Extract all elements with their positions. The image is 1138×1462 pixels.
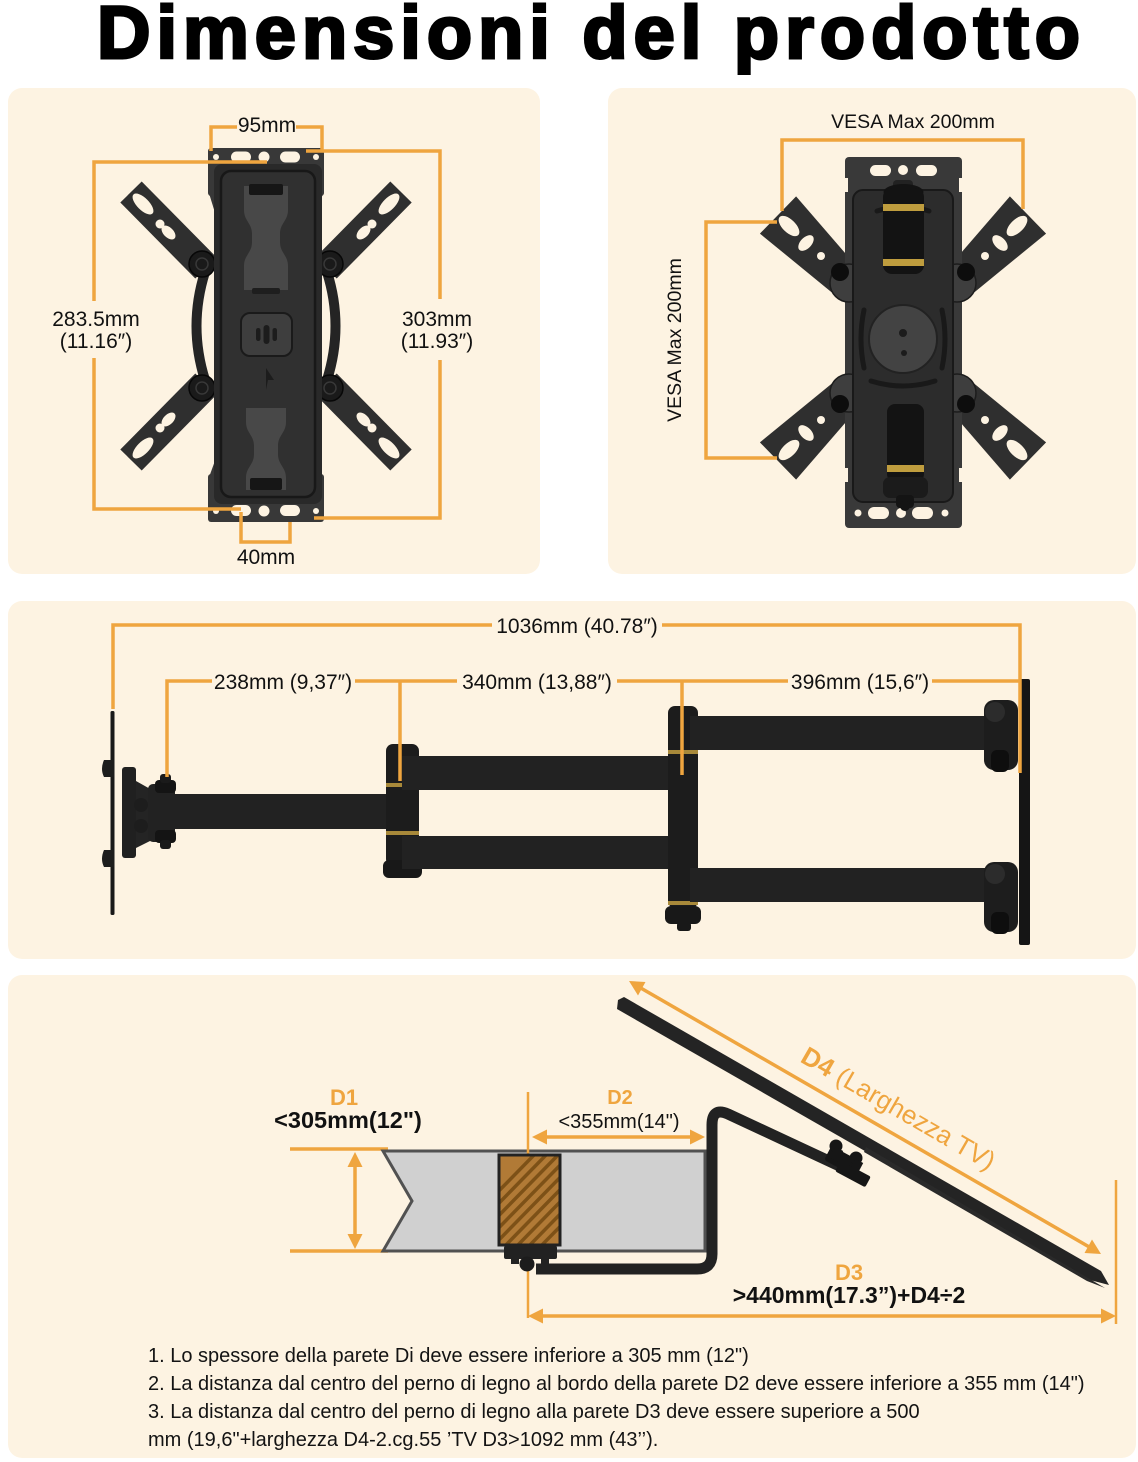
svg-text:238mm (9,37″): 238mm (9,37″) <box>214 671 352 694</box>
svg-text:340mm (13,88″): 340mm (13,88″) <box>462 671 612 694</box>
svg-text:95mm: 95mm <box>238 114 296 137</box>
svg-text:<355mm(14"): <355mm(14") <box>558 1111 679 1133</box>
svg-text:VESA Max 200mm: VESA Max 200mm <box>831 111 995 133</box>
svg-text:<305mm(12"): <305mm(12") <box>274 1107 422 1133</box>
svg-text:VESA Max 200mm: VESA Max 200mm <box>664 258 686 422</box>
svg-text:283.5mm: 283.5mm <box>52 308 140 331</box>
svg-text:2. La distanza dal centro del: 2. La distanza dal centro del perno di l… <box>148 1373 1085 1395</box>
svg-text:(11.93″): (11.93″) <box>401 330 473 353</box>
svg-text:D2: D2 <box>607 1087 633 1109</box>
svg-text:Dimensioni del prodotto: Dimensioni del prodotto <box>97 0 1086 74</box>
svg-text:1036mm (40.78″): 1036mm (40.78″) <box>496 615 658 638</box>
svg-text:3. La distanza dal centro del: 3. La distanza dal centro del perno di l… <box>148 1401 920 1423</box>
svg-text:mm (19,6"+larghezza D4-2.cg.55: mm (19,6"+larghezza D4-2.cg.55 ’TV D3>10… <box>148 1429 658 1451</box>
svg-text:(11.16″): (11.16″) <box>60 330 132 353</box>
svg-text:303mm: 303mm <box>402 308 472 331</box>
svg-text:396mm (15,6″): 396mm (15,6″) <box>791 671 929 694</box>
svg-text:1. Lo spessore della parete Di: 1. Lo spessore della parete Di deve esse… <box>148 1345 749 1367</box>
svg-text:40mm: 40mm <box>237 546 295 569</box>
svg-text:>440mm(17.3”)+D4÷2: >440mm(17.3”)+D4÷2 <box>733 1282 966 1308</box>
